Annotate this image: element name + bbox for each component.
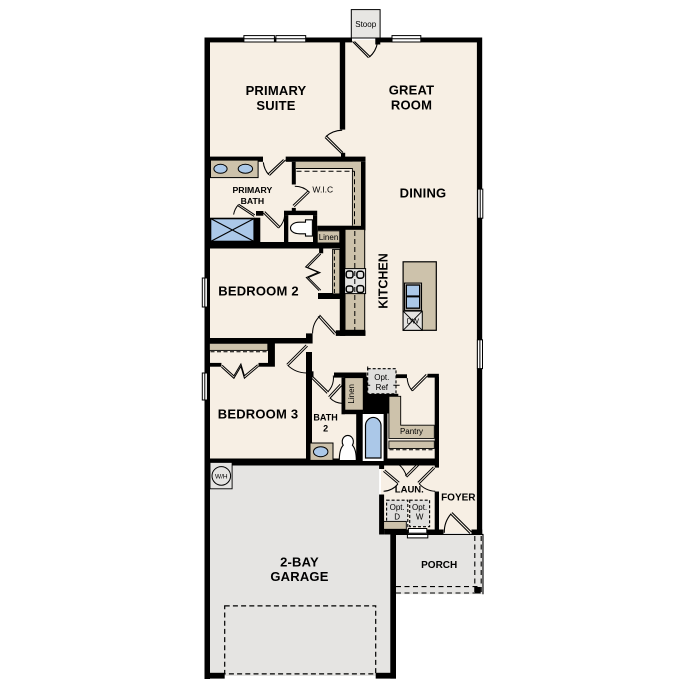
svg-text:BATH: BATH [241,196,264,206]
svg-text:Opt.: Opt. [374,373,389,382]
svg-text:PORCH: PORCH [421,560,457,571]
svg-text:LAUN.: LAUN. [395,484,424,495]
svg-text:GARAGE: GARAGE [270,569,328,584]
svg-text:PRIMARY: PRIMARY [233,185,273,195]
svg-text:Linen: Linen [347,384,356,404]
svg-text:Opt.: Opt. [412,503,427,512]
svg-text:Ref: Ref [376,383,389,392]
svg-text:W.I.C: W.I.C [312,185,333,195]
svg-text:FOYER: FOYER [441,493,476,504]
svg-text:ROOM: ROOM [391,97,432,112]
svg-text:BATH: BATH [313,413,337,423]
svg-text:PRIMARY: PRIMARY [246,83,307,98]
svg-text:SUITE: SUITE [256,98,295,113]
svg-text:DINING: DINING [400,186,447,201]
svg-text:KITCHEN: KITCHEN [377,253,391,309]
svg-text:DW: DW [406,317,419,326]
svg-text:BEDROOM 3: BEDROOM 3 [218,407,299,422]
svg-text:2: 2 [323,424,328,434]
svg-text:W/H: W/H [215,473,228,480]
svg-text:Linen: Linen [319,233,339,242]
svg-text:Opt.: Opt. [390,503,405,512]
svg-text:W: W [416,513,424,522]
svg-text:2-BAY: 2-BAY [280,554,319,569]
svg-text:Stoop: Stoop [355,20,376,29]
svg-text:D: D [394,513,400,522]
svg-text:BEDROOM 2: BEDROOM 2 [218,283,299,298]
svg-text:GREAT: GREAT [389,83,435,98]
svg-text:Pantry: Pantry [400,427,423,436]
